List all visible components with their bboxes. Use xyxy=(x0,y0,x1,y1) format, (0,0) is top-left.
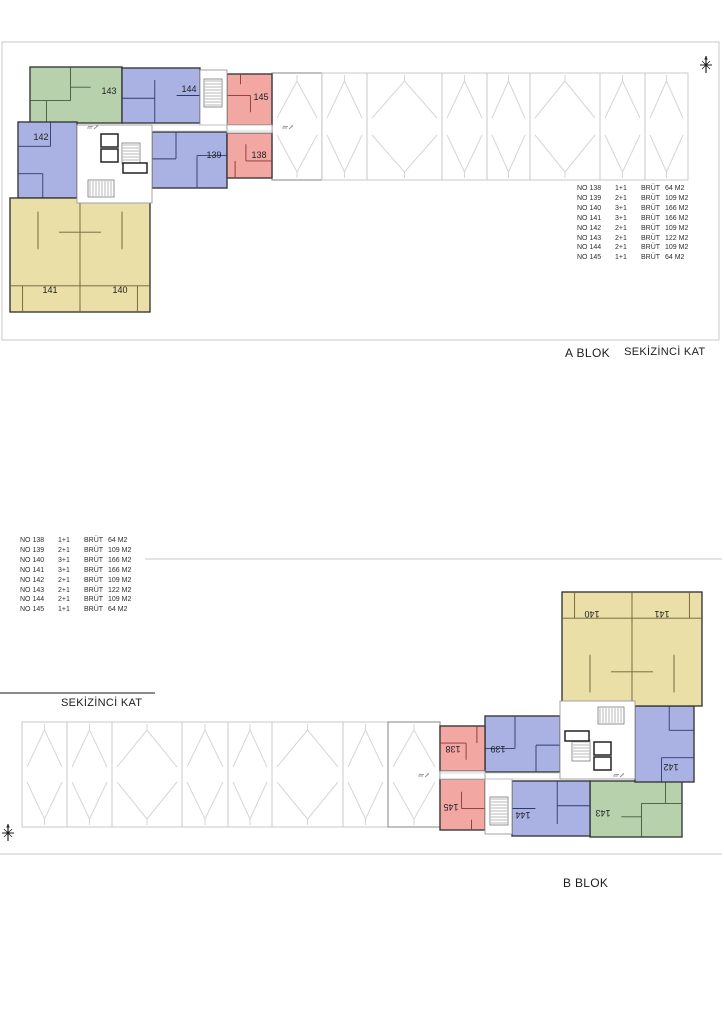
unit-number-label: 142 xyxy=(33,132,48,142)
legend-row: NO 142 2+1 BRÜT 109 M2 xyxy=(20,576,131,586)
legend-brut-label: BRÜT xyxy=(84,546,108,556)
legend-unit-no: NO 144 xyxy=(577,243,615,253)
legend-brut-label: BRÜT xyxy=(641,234,665,244)
legend-area: 109 M2 xyxy=(665,194,688,204)
legend-room-type: 1+1 xyxy=(58,605,84,615)
elevator-shaft xyxy=(101,134,118,147)
legend-room-type: 2+1 xyxy=(615,243,641,253)
legend-brut-label: BRÜT xyxy=(641,214,665,224)
legend-area: 122 M2 xyxy=(108,586,131,596)
legend-row: NO 141 3+1 BRÜT 166 M2 xyxy=(577,214,688,224)
unit-139-b xyxy=(485,716,560,772)
legend-row: NO 145 1+1 BRÜT 64 M2 xyxy=(20,605,131,615)
legend-table-a: NO 138 1+1 BRÜT 64 M2 NO 139 2+1 BRÜT 10… xyxy=(577,184,688,263)
unit-number-label: 143 xyxy=(101,86,116,96)
unit-number-label: 138 xyxy=(251,150,266,160)
core-room xyxy=(440,771,485,779)
legend-area: 166 M2 xyxy=(665,204,688,214)
floorplan-canvas: 1431441451421391381411401431441451421391… xyxy=(0,0,724,1024)
unit-number-label: 140 xyxy=(112,285,127,295)
roof-cell xyxy=(67,722,112,827)
legend-row: NO 138 1+1 BRÜT 64 M2 xyxy=(20,536,131,546)
legend-brut-label: BRÜT xyxy=(641,253,665,263)
legend-row: NO 141 3+1 BRÜT 166 M2 xyxy=(20,566,131,576)
legend-unit-no: NO 142 xyxy=(577,224,615,234)
legend-row: NO 139 2+1 BRÜT 109 M2 xyxy=(577,194,688,204)
legend-row: NO 140 3+1 BRÜT 166 M2 xyxy=(577,204,688,214)
legend-room-type: 3+1 xyxy=(58,566,84,576)
legend-area: 166 M2 xyxy=(108,566,131,576)
legend-room-type: 1+1 xyxy=(615,184,641,194)
legend-unit-no: NO 142 xyxy=(20,576,58,586)
roof-cell xyxy=(600,73,645,180)
roof-cell xyxy=(182,722,228,827)
sheet-a-title: A BLOK SEKİZİNCİ KAT xyxy=(565,346,705,360)
roof-cell xyxy=(367,73,442,180)
block-b-label: B BLOK xyxy=(563,876,608,890)
legend-room-type: 1+1 xyxy=(615,253,641,263)
legend-brut-label: BRÜT xyxy=(84,605,108,615)
legend-brut-label: BRÜT xyxy=(84,576,108,586)
legend-area: 109 M2 xyxy=(665,243,688,253)
legend-area: 64 M2 xyxy=(108,605,131,615)
legend-room-type: 3+1 xyxy=(58,556,84,566)
block-a-label: A BLOK xyxy=(565,346,610,360)
title-divider-line xyxy=(0,692,155,694)
legend-area: 109 M2 xyxy=(108,595,131,605)
roof-cell xyxy=(228,722,272,827)
roof-cell xyxy=(530,73,600,180)
unit-number-label: 138 xyxy=(445,744,460,754)
legend-area: 166 M2 xyxy=(665,214,688,224)
legend-row: NO 142 2+1 BRÜT 109 M2 xyxy=(577,224,688,234)
legend-unit-no: NO 140 xyxy=(577,204,615,214)
legend-area: 64 M2 xyxy=(665,253,688,263)
core-room xyxy=(227,125,272,133)
roof-cell xyxy=(22,722,67,827)
unit-number-label: 141 xyxy=(42,285,57,295)
legend-brut-label: BRÜT xyxy=(641,204,665,214)
floor-a-label: SEKİZİNCİ KAT xyxy=(624,346,705,360)
legend-row: NO 140 3+1 BRÜT 166 M2 xyxy=(20,556,131,566)
legend-unit-no: NO 139 xyxy=(20,546,58,556)
legend-row: NO 143 2+1 BRÜT 122 M2 xyxy=(577,234,688,244)
roof-cell xyxy=(343,722,388,827)
legend-brut-label: BRÜT xyxy=(84,566,108,576)
legend-unit-no: NO 138 xyxy=(20,536,58,546)
unit-number-label: 139 xyxy=(490,744,505,754)
unit-number-label: 139 xyxy=(206,150,221,160)
legend-row: NO 144 2+1 BRÜT 109 M2 xyxy=(20,595,131,605)
compass-north-arrow xyxy=(6,824,10,828)
stairs xyxy=(88,180,114,197)
legend-brut-label: BRÜT xyxy=(641,184,665,194)
legend-room-type: 2+1 xyxy=(58,576,84,586)
elevator-shaft xyxy=(594,742,611,755)
roof-cell xyxy=(272,73,322,180)
legend-area: 109 M2 xyxy=(108,576,131,586)
elevator-shaft xyxy=(123,163,147,173)
legend-unit-no: NO 144 xyxy=(20,595,58,605)
legend-area: 64 M2 xyxy=(108,536,131,546)
roof-cell xyxy=(388,722,440,827)
legend-room-type: 2+1 xyxy=(615,234,641,244)
legend-area: 109 M2 xyxy=(108,546,131,556)
roof-cell xyxy=(272,722,343,827)
legend-unit-no: NO 145 xyxy=(20,605,58,615)
compass-center xyxy=(6,831,9,834)
legend-row: NO 144 2+1 BRÜT 109 M2 xyxy=(577,243,688,253)
stairs xyxy=(572,740,590,761)
legend-brut-label: BRÜT xyxy=(84,595,108,605)
legend-brut-label: BRÜT xyxy=(84,556,108,566)
floor-b-label: SEKİZİNCİ KAT xyxy=(61,697,142,709)
elevator-shaft xyxy=(594,757,611,770)
plan-sheet-page: 1431441451421391381411401431441451421391… xyxy=(0,0,724,1024)
legend-area: 64 M2 xyxy=(665,184,688,194)
unit-number-label: 140 xyxy=(584,609,599,619)
legend-brut-label: BRÜT xyxy=(641,224,665,234)
legend-unit-no: NO 138 xyxy=(577,184,615,194)
legend-area: 122 M2 xyxy=(665,234,688,244)
unit-number-label: 145 xyxy=(253,92,268,102)
legend-unit-no: NO 139 xyxy=(577,194,615,204)
roof-cell xyxy=(112,722,182,827)
roof-cell xyxy=(645,73,688,180)
unit-number-label: 144 xyxy=(515,810,530,820)
unit-number-label: 141 xyxy=(654,609,669,619)
legend-area: 166 M2 xyxy=(108,556,131,566)
north-compass-icon xyxy=(2,824,14,841)
compass-north-arrow xyxy=(704,56,708,60)
compass-center xyxy=(704,63,707,66)
legend-room-type: 2+1 xyxy=(615,224,641,234)
legend-unit-no: NO 143 xyxy=(20,586,58,596)
legend-table-b: NO 138 1+1 BRÜT 64 M2 NO 139 2+1 BRÜT 10… xyxy=(20,536,131,615)
legend-row: NO 138 1+1 BRÜT 64 M2 xyxy=(577,184,688,194)
legend-unit-no: NO 141 xyxy=(577,214,615,224)
legend-room-type: 1+1 xyxy=(58,536,84,546)
roof-cell xyxy=(322,73,367,180)
unit-number-label: 144 xyxy=(181,84,196,94)
legend-room-type: 2+1 xyxy=(615,194,641,204)
legend-brut-label: BRÜT xyxy=(84,536,108,546)
unit-139-a xyxy=(152,132,227,188)
legend-room-type: 2+1 xyxy=(58,595,84,605)
legend-brut-label: BRÜT xyxy=(641,243,665,253)
legend-unit-no: NO 141 xyxy=(20,566,58,576)
legend-row: NO 143 2+1 BRÜT 122 M2 xyxy=(20,586,131,596)
elevator-shaft xyxy=(565,731,589,741)
legend-room-type: 2+1 xyxy=(58,586,84,596)
north-compass-icon xyxy=(700,56,712,73)
legend-area: 109 M2 xyxy=(665,224,688,234)
unit-number-label: 145 xyxy=(443,802,458,812)
legend-unit-no: NO 140 xyxy=(20,556,58,566)
legend-brut-label: BRÜT xyxy=(84,586,108,596)
legend-room-type: 3+1 xyxy=(615,204,641,214)
roof-cell xyxy=(442,73,487,180)
roof-cell xyxy=(487,73,530,180)
stairs xyxy=(122,143,140,164)
stairs xyxy=(598,707,624,724)
unit-number-label: 143 xyxy=(595,808,610,818)
elevator-shaft xyxy=(101,149,118,162)
legend-brut-label: BRÜT xyxy=(641,194,665,204)
legend-unit-no: NO 143 xyxy=(577,234,615,244)
unit-number-label: 142 xyxy=(663,762,678,772)
legend-unit-no: NO 145 xyxy=(577,253,615,263)
legend-room-type: 2+1 xyxy=(58,546,84,556)
legend-room-type: 3+1 xyxy=(615,214,641,224)
legend-row: NO 139 2+1 BRÜT 109 M2 xyxy=(20,546,131,556)
legend-row: NO 145 1+1 BRÜT 64 M2 xyxy=(577,253,688,263)
